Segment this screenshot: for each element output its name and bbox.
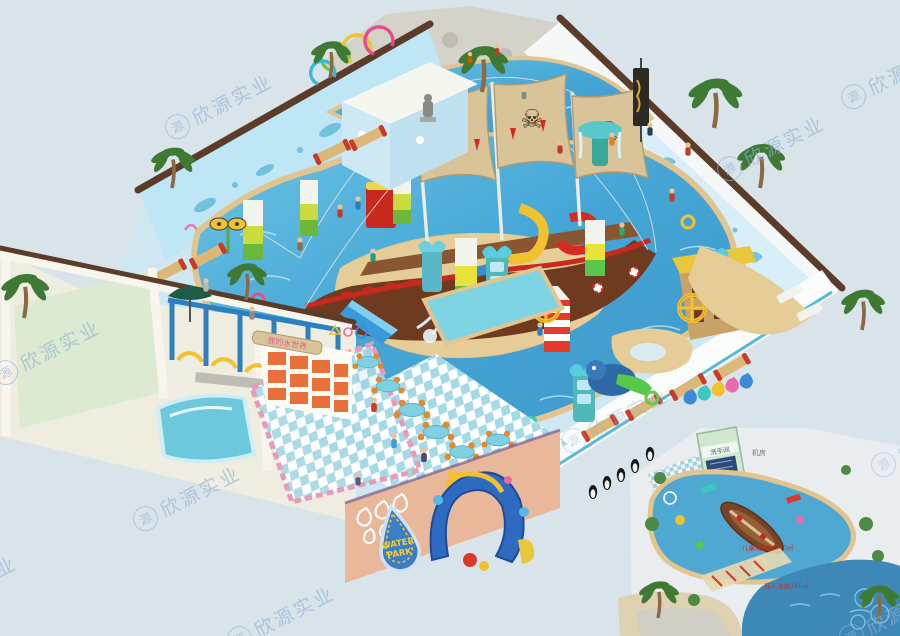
- water-park-render: ☠ ☠ ☠: [0, 0, 900, 636]
- plan-kids-pool-label: 儿童戏水池120㎡: [742, 543, 794, 552]
- scene-canvas: ☠ ☠ ☠: [0, 0, 900, 636]
- plan-machine-room-label: 机房: [752, 448, 766, 457]
- ship-cabin-red: [366, 186, 396, 228]
- sand-islet-pool: [630, 343, 666, 361]
- plan-adult-pool-label: 成人泳池165㎡: [764, 581, 809, 590]
